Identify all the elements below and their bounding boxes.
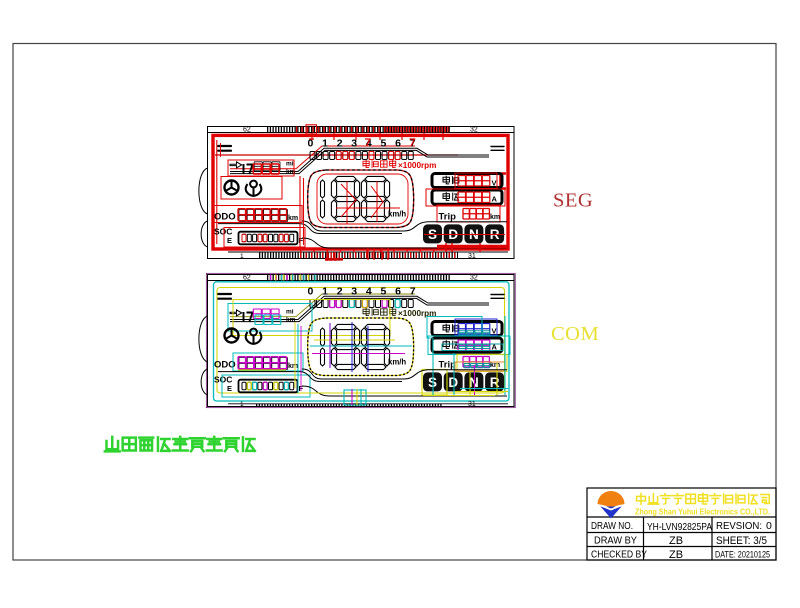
svg-text:1: 1 <box>240 401 244 408</box>
svg-text:62: 62 <box>243 275 251 282</box>
svg-text:Trip: Trip <box>439 212 457 223</box>
svg-text:2: 2 <box>337 285 343 297</box>
svg-text:SHEET: 3/5: SHEET: 3/5 <box>716 535 767 547</box>
svg-text:km/h: km/h <box>388 358 406 367</box>
svg-text:D: D <box>448 375 458 390</box>
svg-text:1: 1 <box>240 253 244 260</box>
svg-text:31: 31 <box>468 401 476 408</box>
svg-text:6: 6 <box>395 285 401 297</box>
svg-text:32: 32 <box>470 275 478 282</box>
svg-text:F: F <box>299 236 304 245</box>
svg-text:R: R <box>490 375 500 390</box>
svg-text:CHECKED BY: CHECKED BY <box>591 549 647 561</box>
svg-text:7: 7 <box>410 285 416 297</box>
svg-text:km: km <box>288 215 298 222</box>
svg-text:DRAW NO.: DRAW NO. <box>591 520 633 532</box>
svg-text:62: 62 <box>243 127 251 134</box>
svg-text:km: km <box>490 214 500 221</box>
svg-text:SOC: SOC <box>214 375 232 385</box>
svg-text:km/h: km/h <box>388 210 406 219</box>
svg-text:0: 0 <box>308 285 314 297</box>
svg-text:3: 3 <box>351 285 357 297</box>
svg-text:COM: COM <box>551 323 599 345</box>
svg-text:E: E <box>227 384 232 393</box>
svg-text:km: km <box>288 363 298 370</box>
svg-text:3: 3 <box>351 137 357 149</box>
svg-text:0: 0 <box>766 520 772 532</box>
svg-text:V: V <box>492 327 497 336</box>
svg-text:REVSION:: REVSION: <box>716 520 762 532</box>
svg-text:Zhong Shan Yuhui Electronics C: Zhong Shan Yuhui Electronics CO.,LTD. <box>635 508 770 517</box>
svg-text:1: 1 <box>322 137 328 149</box>
svg-text:×1000rpm: ×1000rpm <box>398 161 436 170</box>
svg-text:32: 32 <box>470 127 478 134</box>
svg-text:mi: mi <box>286 161 294 168</box>
svg-text:ODO: ODO <box>214 212 236 223</box>
svg-text:mi: mi <box>286 309 294 316</box>
svg-text:ODO: ODO <box>214 360 236 371</box>
svg-text:31: 31 <box>468 253 476 260</box>
svg-text:6: 6 <box>395 137 401 149</box>
svg-text:5: 5 <box>381 285 387 297</box>
svg-text:1: 1 <box>322 285 328 297</box>
svg-text:YH-LVN92825PA: YH-LVN92825PA <box>647 521 712 533</box>
svg-text:ZB: ZB <box>669 549 683 561</box>
svg-text:km: km <box>286 317 296 324</box>
svg-text:2: 2 <box>337 137 343 149</box>
svg-text:DATE: 20210125: DATE: 20210125 <box>715 550 770 560</box>
svg-text:V: V <box>492 179 497 188</box>
svg-text:A: A <box>492 195 498 204</box>
svg-text:5: 5 <box>381 137 387 149</box>
svg-text:E: E <box>227 236 232 245</box>
svg-text:DRAW BY: DRAW BY <box>594 535 637 547</box>
svg-text:SEG: SEG <box>553 190 593 212</box>
svg-text:ZB: ZB <box>669 535 683 547</box>
svg-text:4: 4 <box>366 285 372 297</box>
svg-text:km: km <box>490 362 500 369</box>
